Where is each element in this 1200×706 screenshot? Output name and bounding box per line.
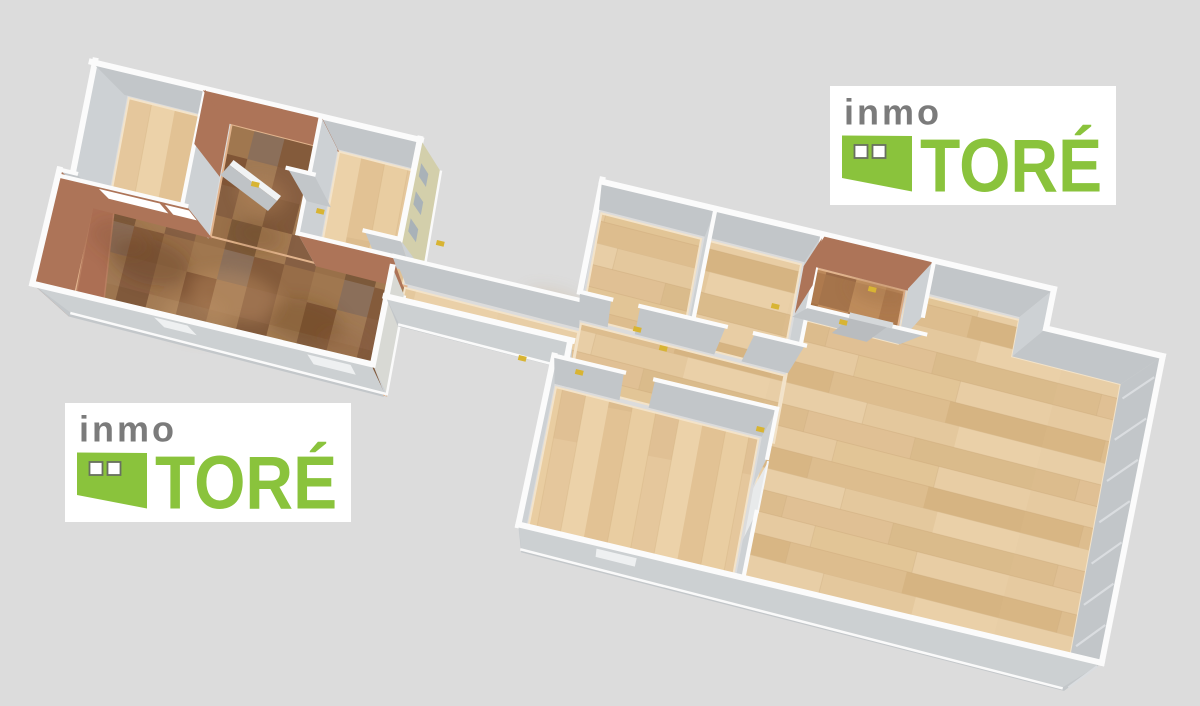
svg-text:TORÉ: TORÉ (920, 124, 1102, 208)
svg-text:TORÉ: TORÉ (155, 441, 337, 525)
